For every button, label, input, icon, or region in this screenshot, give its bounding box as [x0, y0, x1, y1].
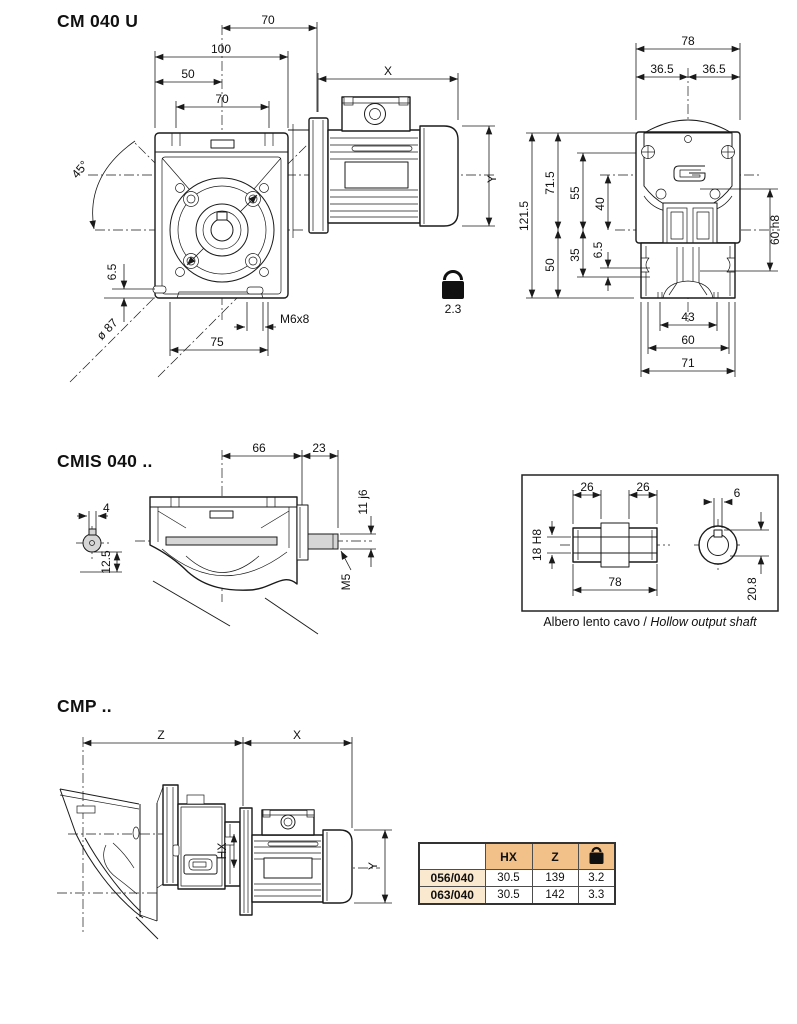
- weight-value: 2.3: [445, 302, 462, 316]
- dim-20-8: 20.8: [745, 577, 759, 601]
- weight-unit: Kg: [446, 286, 461, 298]
- dim-75: 75: [210, 335, 224, 349]
- dim-18h8: 18 H8: [530, 529, 544, 561]
- dim-100: 100: [211, 42, 231, 56]
- cmp-drawing: Z X HX Y: [57, 728, 392, 939]
- kg-icon: Kg: [588, 846, 605, 865]
- dim-x: X: [384, 64, 392, 78]
- dim-71: 71: [681, 356, 695, 370]
- section-title-cmis: CMIS 040 ..: [57, 451, 153, 471]
- hollow-shaft-caption: Albero lento cavo / Hollow output shaft: [543, 615, 757, 629]
- table-cell-hx: 30.5: [485, 887, 532, 905]
- dim-36-5-left: 36.5: [650, 62, 674, 76]
- dim-36-5-right: 36.5: [702, 62, 726, 76]
- hollow-shaft-end-view: [699, 526, 737, 564]
- dim-50-rear: 50: [543, 258, 557, 272]
- table-header-z: Z: [532, 843, 578, 870]
- dim-tap-m6x8: M6x8: [280, 312, 310, 326]
- cable-gland-icon: [365, 104, 386, 125]
- dim-m5: M5: [339, 573, 353, 590]
- caption-italian: Albero lento cavo: [543, 615, 640, 629]
- caption-english: Hollow output shaft: [650, 615, 757, 629]
- dim-4: 4: [103, 501, 110, 515]
- dim-78: 78: [681, 34, 695, 48]
- dim-70-bolts: 70: [215, 92, 229, 106]
- dim-70-top: 70: [261, 13, 275, 27]
- dim-bolt-circle-87: ø 87: [94, 315, 121, 342]
- dim-x-cmp: X: [293, 728, 301, 742]
- gearbox-front-view: [153, 133, 288, 298]
- table-cell-kg: 3.2: [578, 870, 615, 887]
- dim-12-5: 12.5: [99, 550, 113, 574]
- gearbox-flange: [163, 785, 178, 885]
- dim-43: 43: [681, 310, 695, 324]
- technical-drawing-canvas: CM 040 U CMIS 040 .. CMP ..: [0, 0, 797, 1024]
- dim-6-5-rear: 6.5: [591, 241, 605, 258]
- dim-60: 60: [681, 333, 695, 347]
- kg-icon-label: Kg: [591, 854, 602, 863]
- output-bell-housing: [60, 787, 163, 939]
- shaft-end-view: [83, 534, 101, 552]
- dim-71-5: 71.5: [543, 171, 557, 195]
- dim-35: 35: [568, 248, 582, 262]
- catalog-page: CM 040 U CMIS 040 .. CMP ..: [0, 0, 797, 1024]
- gear-unit-body: [173, 795, 240, 889]
- table-cell-hx: 30.5: [485, 870, 532, 887]
- table-header-hx: HX: [485, 843, 532, 870]
- table-row-model: 063/040: [419, 887, 485, 905]
- dim-60h8: 60 h8: [768, 215, 782, 245]
- table-cell-z: 142: [532, 887, 578, 905]
- dim-6-5-front: 6.5: [105, 263, 119, 280]
- dim-6: 6: [734, 486, 741, 500]
- dim-121-5: 121.5: [517, 201, 531, 231]
- dim-55: 55: [568, 186, 582, 200]
- input-shaft: [308, 534, 338, 549]
- motor-side-view: [288, 97, 458, 238]
- cmp-motor: [240, 808, 352, 915]
- table-cell-z: 139: [532, 870, 578, 887]
- dim-hx: HX: [215, 843, 229, 860]
- dim-50: 50: [181, 67, 195, 81]
- table-cell-kg: 3.3: [578, 887, 615, 905]
- cmp-cable-gland-icon: [281, 815, 295, 829]
- dim-y: Y: [485, 175, 499, 183]
- caption-separator: /: [640, 615, 650, 629]
- dimension-table: HX Z Kg 056/040 30.5 139 3.2 063/040 30.…: [418, 842, 616, 905]
- weight-handle-icon: [445, 272, 462, 281]
- section-title-cm040u: CM 040 U: [57, 11, 138, 31]
- dim-78-hollow: 78: [608, 575, 622, 589]
- dim-z: Z: [157, 728, 164, 742]
- cm040u-rear-view: 78 36.5 36.5 121.5 71.5 50 55 35 40 6.5 …: [517, 34, 782, 377]
- dim-40: 40: [593, 197, 607, 211]
- section-title-cmp: CMP ..: [57, 696, 112, 716]
- table-row-model: 056/040: [419, 870, 485, 887]
- hollow-shaft-detail: 26 26 78 18 H8 6 20.8 Albero lento cavo …: [522, 475, 778, 629]
- dim-y-cmp: Y: [366, 862, 380, 870]
- dim-66: 66: [252, 441, 266, 455]
- table-header-blank: [419, 843, 485, 870]
- cm040u-drawing: 70 100 50 70 X Y 45° 6.5 ø 87 M6x8 75: [69, 13, 499, 382]
- table-header-kg: Kg: [578, 843, 615, 870]
- dim-26-left: 26: [580, 480, 594, 494]
- dim-23: 23: [312, 441, 326, 455]
- weight-badge: Kg 2.3: [442, 272, 464, 317]
- dim-angle-45: 45°: [69, 158, 92, 181]
- dim-26-right: 26: [636, 480, 650, 494]
- dim-11j6: 11 j6: [356, 489, 370, 514]
- hollow-shaft-side-view: [573, 523, 657, 567]
